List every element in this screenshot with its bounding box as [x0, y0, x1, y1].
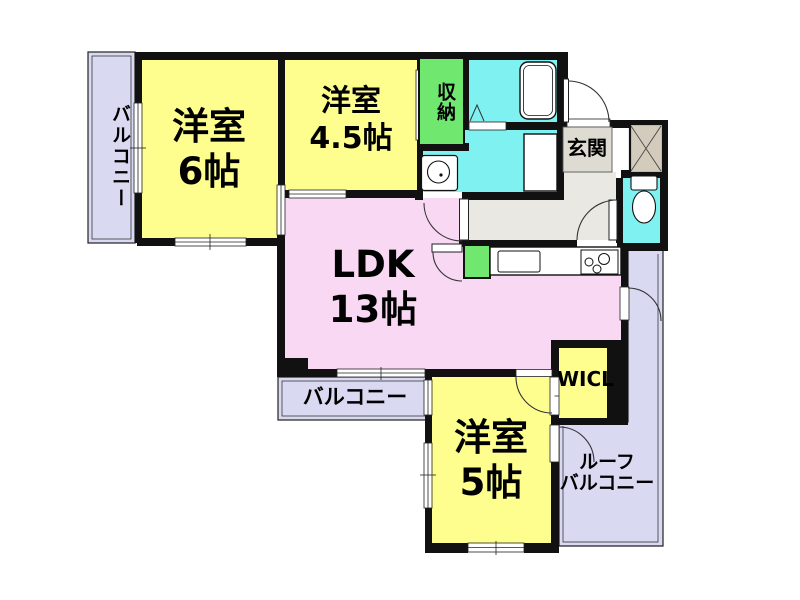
hallway-fill-vertical — [563, 172, 616, 200]
hallway-door-leaf — [609, 200, 617, 240]
toilet-bowl — [633, 191, 656, 223]
kitchen-door-leaf — [432, 244, 462, 252]
floor-plan-drawing — [0, 0, 800, 600]
floor-plan: 洋室 6帖 洋室 4.5帖 LDK 13帖 洋室 5帖 WICL 玄関 バルコニ… — [0, 0, 800, 600]
room-western5-fill — [432, 377, 551, 543]
washing-machine-space — [524, 134, 557, 191]
washbasin-bowl — [428, 161, 450, 183]
balcony-left — [88, 52, 135, 243]
kitchen-balcony-door-opening — [620, 287, 629, 320]
entrance-door-leaf — [564, 79, 569, 122]
kitchen-sink — [498, 251, 540, 272]
bathroom-door-opening — [469, 122, 506, 130]
washbasin-drain — [439, 173, 442, 176]
storage-closet — [419, 58, 464, 145]
ldk-west5-door-opening — [516, 370, 552, 377]
balcony-bottom — [278, 377, 430, 420]
wicl-fill — [558, 348, 607, 418]
room-western6-fill — [141, 60, 278, 238]
ldk-fill-lower — [462, 340, 551, 369]
bathtub — [520, 62, 556, 119]
entrance-door-arc — [568, 81, 609, 122]
west5-balcony-door-opening — [550, 425, 559, 462]
toilet-tank — [631, 176, 657, 190]
entrance-door-opening — [567, 119, 610, 127]
entrance-floor — [563, 127, 612, 172]
ldk-fill-living — [285, 198, 462, 369]
kitchen-cabinet — [464, 245, 490, 278]
room-western45-fill — [285, 60, 417, 190]
hallway-fill-horizontal — [465, 200, 616, 240]
washroom-door-leaf — [460, 199, 469, 240]
